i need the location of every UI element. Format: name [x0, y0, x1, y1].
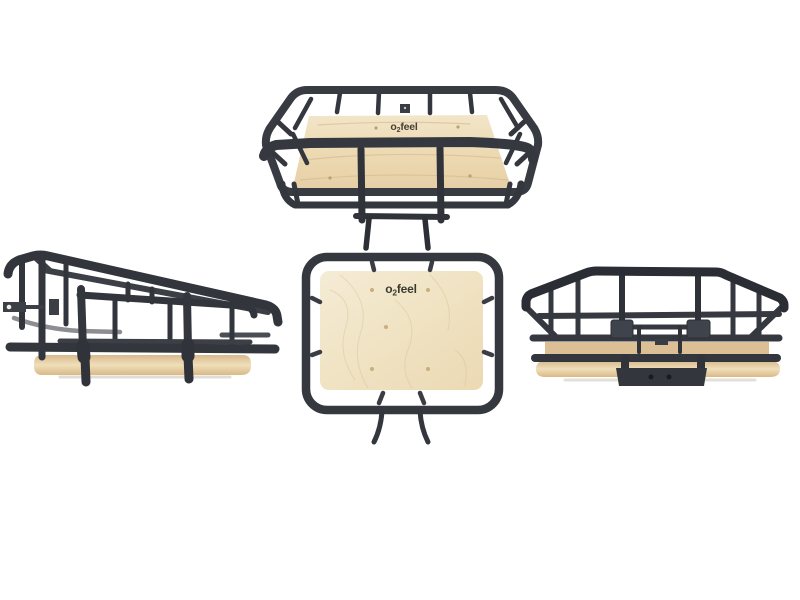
svg-text:o2feel: o2feel: [385, 282, 417, 298]
svg-text:o2feel: o2feel: [390, 121, 417, 134]
